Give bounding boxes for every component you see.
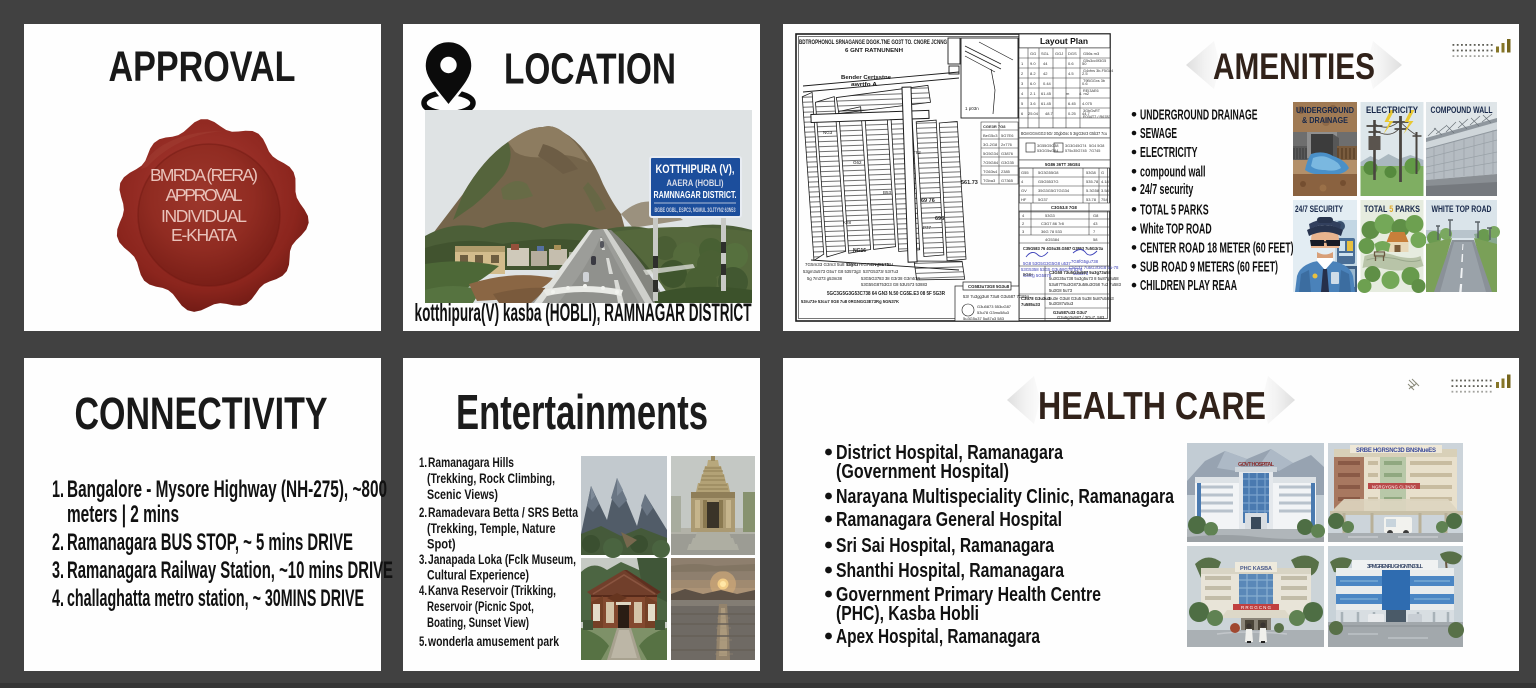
svg-text:1.: 1. xyxy=(419,455,427,470)
svg-text:754: 754 xyxy=(1101,197,1108,202)
svg-text:53u78 G3mu58u3: 53u78 G3mu58u3 xyxy=(977,310,1010,315)
svg-text:3.6: 3.6 xyxy=(1030,101,1036,106)
svg-text:5G5G34: 5G5G34 xyxy=(983,151,999,156)
svg-text:25.04: 25.04 xyxy=(1028,111,1039,116)
svg-text:C3G53.8 7G8: C3G53.8 7G8 xyxy=(1051,205,1078,210)
svg-text:9.0: 9.0 xyxy=(1030,61,1036,66)
svg-text:53gm3u573 G5u7 G8 53573g3: 53gm3u573 G5u7 G8 53573g3 xyxy=(803,269,861,274)
svg-text:SRBE HGRSNC3D BNSNueES: SRBE HGRSNC3D BNSNueES xyxy=(1356,448,1436,454)
svg-text:GG: GG xyxy=(1030,51,1036,56)
svg-text:53G5G3783 38 G3r38 G3m573: 53G5G3783 38 G3r38 G3m573 xyxy=(861,276,920,281)
svg-text:C3G7 86 7r8: C3G7 86 7r8 xyxy=(1041,221,1065,226)
svg-text:G4vfns 3b-F5G84: G4vfns 3b-F5G84 xyxy=(1083,69,1113,73)
svg-text:Ramanagara General Hospital: Ramanagara General Hospital xyxy=(836,508,1062,531)
svg-text:61.45: 61.45 xyxy=(1041,91,1052,96)
svg-text:5G3G55G8: 5G3G55G8 xyxy=(1038,170,1059,175)
svg-text:3: 3 xyxy=(1022,229,1025,234)
svg-text:G56s m3: G56s m3 xyxy=(1083,51,1100,56)
svg-text:Apex Hospital, Ramanagara: Apex Hospital, Ramanagara xyxy=(836,625,1040,648)
svg-text:4.: 4. xyxy=(52,585,64,612)
svg-text:61.45: 61.45 xyxy=(1041,101,1052,106)
svg-text:5G86 36TT 36G84: 5G86 36TT 36G84 xyxy=(1045,162,1081,167)
svg-text:C35G583 76 4G5u38.G587 G3863 7: C35G583 76 4G5u38.G587 G3863 7u5G3r3a xyxy=(1023,246,1104,251)
svg-text:3GbGsRT: 3GbGsRT xyxy=(1083,109,1101,113)
svg-text:3.: 3. xyxy=(52,557,64,584)
svg-text:LOCATION: LOCATION xyxy=(504,45,676,94)
svg-text:0.6: 0.6 xyxy=(1068,61,1074,66)
svg-text:& DRAINAGE: & DRAINAGE xyxy=(1302,115,1348,125)
svg-text:3G3G45G74: 3G3G45G74 xyxy=(1065,144,1087,148)
svg-text:3.: 3. xyxy=(419,552,427,567)
svg-text:53r 7u3gg3u8 73u8 G3u587 7G85g: 53r 7u3gg3u8 73u8 G3u587 7G85g xyxy=(963,294,1030,299)
svg-text:7G5m33 G3m3 5u8 53g73: 7G5m33 G3m3 5u8 53g73 xyxy=(805,262,859,267)
svg-text:PHC KASBA: PHC KASBA xyxy=(1240,566,1272,572)
svg-text:4.: 4. xyxy=(419,583,427,598)
svg-text:5G7E6: 5G7E6 xyxy=(1001,133,1014,138)
svg-text:G5G5537G: G5G5537G xyxy=(1038,179,1058,184)
svg-text:6 GNT RATNUNENH: 6 GNT RATNUNENH xyxy=(845,48,903,54)
svg-text:44: 44 xyxy=(1043,61,1048,66)
svg-text:Ramanagara Railway Station, ~1: Ramanagara Railway Station, ~10 mins DRI… xyxy=(67,557,393,584)
svg-text:DGS: DGS xyxy=(1068,51,1077,56)
svg-text:NG16: NG16 xyxy=(853,248,866,254)
svg-text:3.58: 3.58 xyxy=(1101,188,1110,193)
svg-text:7G745: 7G745 xyxy=(1089,149,1100,153)
svg-text:COMPOUND WALL: COMPOUND WALL xyxy=(1431,105,1493,115)
svg-text:561.73: 561.73 xyxy=(961,180,978,186)
svg-text:HF: HF xyxy=(1021,197,1027,202)
svg-text:53G3: 53G3 xyxy=(1045,213,1056,218)
svg-text:AMENITIES: AMENITIES xyxy=(1213,46,1375,87)
svg-text:Boating, Sunset View): Boating, Sunset View) xyxy=(427,615,529,630)
svg-text:ELECTRICITY: ELECTRICITY xyxy=(1366,105,1418,115)
svg-text:K28: K28 xyxy=(843,220,852,225)
svg-text:GOVT HOSPITAL: GOVT HOSPITAL xyxy=(1238,462,1275,468)
svg-text:5u3G87u5u3: 5u3G87u5u3 xyxy=(1049,301,1074,306)
svg-text:Kanva Reservoir (Trikking,: Kanva Reservoir (Trikking, xyxy=(428,583,556,598)
svg-text:5.: 5. xyxy=(419,634,427,649)
svg-text:E034T7 / R6783: E034T7 / R6783 xyxy=(1083,115,1111,119)
svg-text:G7365: G7365 xyxy=(1001,178,1014,183)
svg-text:GV: GV xyxy=(1021,188,1027,193)
svg-text:4: 4 xyxy=(1021,179,1024,184)
svg-text:Bangalore - Mysore Highway (NH: Bangalore - Mysore Highway (NH-275), ~80… xyxy=(67,476,387,503)
svg-text:2.: 2. xyxy=(419,505,427,520)
svg-text:7u585u33: 7u585u33 xyxy=(1021,302,1041,307)
svg-text:5u3G8 5u73: 5u3G8 5u73 xyxy=(1049,288,1073,293)
svg-text:CG583u73G8 5G3u8: CG583u73G8 5G3u8 xyxy=(968,284,1010,289)
svg-text:4G5384: 4G5384 xyxy=(1045,237,1060,242)
svg-text:G8: G8 xyxy=(1093,213,1099,218)
svg-text:2385: 2385 xyxy=(1001,169,1011,174)
svg-text:5g 7m373 g53m38: 5g 7m373 g53m38 xyxy=(807,276,843,281)
svg-text:ELECTRICITY: ELECTRICITY xyxy=(1140,145,1198,161)
svg-text:G55: G55 xyxy=(1021,170,1029,175)
svg-text:AAERA (HOBLI): AAERA (HOBLI) xyxy=(667,178,724,189)
svg-text:REI3AE6: REI3AE6 xyxy=(1083,89,1099,93)
svg-text:compound wall: compound wall xyxy=(1140,164,1206,180)
svg-text:53G55G8753G3 G8 53U573 53883: 53G55G8753G3 G8 53U573 53883 xyxy=(861,282,928,287)
svg-text:TG63s4: TG63s4 xyxy=(983,169,998,174)
svg-text:69 76: 69 76 xyxy=(921,198,935,204)
svg-text:Sri Sai Hospital, Ramanagara: Sri Sai Hospital, Ramanagara xyxy=(836,534,1054,557)
svg-text:2: 2 xyxy=(1022,221,1025,226)
svg-text:(Trekking, Temple, Nature: (Trekking, Temple, Nature xyxy=(427,521,556,536)
svg-text:1.: 1. xyxy=(52,476,64,503)
svg-text:GGJ: GGJ xyxy=(1055,51,1063,56)
svg-text:G: G xyxy=(1101,170,1104,175)
svg-text:G3u5873 553uG87: G3u5873 553uG87 xyxy=(977,304,1012,309)
svg-text:RRGGCNG: RRGGCNG xyxy=(1241,605,1271,610)
svg-text:C7g3573: C7g3573 xyxy=(871,262,890,267)
svg-text:537G5373r 53r7u3: 537G5373r 53r7u3 xyxy=(863,269,899,274)
svg-text:BGmGGmGG3 5Gr 3GgbGsc 5 3rgG3s: BGmGGmGG3 5Gr 3GgbGsc 5 3rgG3sr3 G5b37 7… xyxy=(1021,131,1108,136)
svg-text:(PHC), Kasba Hobli: (PHC), Kasba Hobli xyxy=(836,602,979,625)
svg-text:SUB ROAD 9 METERS (60 FEET): SUB ROAD 9 METERS (60 FEET) xyxy=(1140,259,1278,275)
svg-text:P77: P77 xyxy=(923,225,932,230)
svg-text:HEALTH CARE: HEALTH CARE xyxy=(1038,385,1266,428)
svg-text:CHILDREN PLAY REAA: CHILDREN PLAY REAA xyxy=(1140,278,1237,294)
svg-text:3G-2G8: 3G-2G8 xyxy=(983,142,998,147)
svg-text:(Government Hospital): (Government Hospital) xyxy=(836,460,1009,483)
svg-text:Ramanagara Hills: Ramanagara Hills xyxy=(428,455,514,470)
svg-text:Ramadevara Betta / SRS Betta: Ramadevara Betta / SRS Betta xyxy=(428,505,578,520)
svg-text:7G8fG5gu738: 7G8fG5gu738 xyxy=(1071,259,1099,264)
svg-text:5.3G58: 5.3G58 xyxy=(1086,188,1100,193)
svg-text:BDTROPHONGL SRNAGANGE DGGK.TNE: BDTROPHONGL SRNAGANGE DGGK.TNE GO3T TO. … xyxy=(799,39,947,46)
svg-text:CONNECTIVITY: CONNECTIVITY xyxy=(75,388,328,439)
svg-text:T9BGGxs 3b: T9BGGxs 3b xyxy=(1083,79,1105,83)
svg-text:5G8 53G5G3G5G8 u537: 5G8 53G5G3G5G8 u537 xyxy=(1023,261,1071,266)
svg-text:E-KHATA: E-KHATA xyxy=(171,225,237,245)
svg-text:2.1: 2.1 xyxy=(1030,91,1036,96)
svg-text:wonderla amusement park: wonderla amusement park xyxy=(427,634,559,649)
svg-text:UNDERGROUND: UNDERGROUND xyxy=(1296,105,1354,115)
svg-text:53u87T5u3G873u58u3G58 7u3 7u58: 53u87T5u3G873u58u3G58 7u3 7u583 xyxy=(1049,282,1122,287)
svg-text:BeG5c3: BeG5c3 xyxy=(983,133,998,138)
svg-text:TOTAL 5 PARKS: TOTAL 5 PARKS xyxy=(1364,204,1420,214)
svg-text:24/7 security: 24/7 security xyxy=(1140,182,1193,198)
svg-text:Shanthi Hospital, Ramanagara: Shanthi Hospital, Ramanagara xyxy=(836,559,1064,582)
svg-text:Cultural Experience): Cultural Experience) xyxy=(427,567,529,582)
svg-text:G3u5g3u587 / 3Gu7, 583: G3u5g3u587 / 3Gu7, 583 xyxy=(1057,315,1105,320)
svg-text:48.7: 48.7 xyxy=(1045,111,1054,116)
svg-text:NGRGYGNG CL3N3C: NGRGYGNG CL3N3C xyxy=(1372,485,1416,490)
svg-text:0.25: 0.25 xyxy=(1068,111,1077,116)
svg-text:53.78: 53.78 xyxy=(1086,197,1097,202)
svg-text:G5s3cc0f3G5: G5s3cc0f3G5 xyxy=(1083,59,1106,63)
svg-text:5G37: 5G37 xyxy=(1038,197,1049,202)
svg-text:35G3G5G7GG34: 35G3G5G7GG34 xyxy=(1038,188,1070,193)
svg-text:WHITE TOP ROAD: WHITE TOP ROAD xyxy=(1432,204,1492,214)
svg-text:BGBE OGBL, ESPC3, NGMUL 3GJTYN: BGBE OGBL, ESPC3, NGMUL 3GJTYN2 63N53 xyxy=(655,207,736,214)
svg-text:C3u78 G3u3u3: C3u78 G3u3u3 xyxy=(1021,296,1051,301)
svg-text:T92: T92 xyxy=(913,150,921,155)
svg-text:4.075: 4.075 xyxy=(1082,101,1093,106)
svg-text:G3G35: G3G35 xyxy=(1001,160,1015,165)
svg-text:0.44: 0.44 xyxy=(1043,81,1052,86)
svg-text:Spot): Spot) xyxy=(427,536,456,551)
svg-text:3G55G5G38: 3G55G5G38 xyxy=(1037,144,1059,148)
svg-text:G62: G62 xyxy=(853,160,862,165)
svg-text:Layout Plan: Layout Plan xyxy=(1040,36,1088,46)
svg-text:KOTTHIPURA (V),: KOTTHIPURA (V), xyxy=(656,164,735,176)
svg-text:CGE3R 7G8: CGE3R 7G8 xyxy=(983,124,1006,129)
svg-text:TGba3: TGba3 xyxy=(983,178,996,183)
svg-text:challaghatta metro station, ~: challaghatta metro station, ~ 30MINS DRI… xyxy=(67,585,364,612)
svg-text:4.5: 4.5 xyxy=(1068,71,1074,76)
svg-text:5u3G5u37 5u87u3 583: 5u3G5u37 5u87u3 583 xyxy=(963,316,1005,321)
svg-text:CENTER ROAD 18 METER (60 FEET): CENTER ROAD 18 METER (60 FEET) xyxy=(1140,240,1294,256)
svg-text:RAMNNAGAR DISTRICT.: RAMNNAGAR DISTRICT. xyxy=(654,190,737,201)
svg-text:NG3: NG3 xyxy=(823,130,833,135)
svg-text:53G8: 53G8 xyxy=(1086,170,1097,175)
svg-text:8.2: 8.2 xyxy=(1030,71,1036,76)
svg-text:53ru73e 53cu7 0G8 7u8 0RGNGG3E: 53ru73e 53cu7 0G8 7u8 0RGNGG3E73Rg 5GN37… xyxy=(801,299,900,304)
svg-text:White TOP ROAD: White TOP ROAD xyxy=(1140,222,1212,238)
svg-text:7: 7 xyxy=(1093,229,1096,234)
svg-text:APPROVAL: APPROVAL xyxy=(109,43,296,91)
svg-text:4: 4 xyxy=(1022,213,1025,218)
svg-text:B53: B53 xyxy=(883,190,892,195)
svg-text:SGL: SGL xyxy=(1041,51,1050,56)
svg-text:4.18: 4.18 xyxy=(1101,179,1110,184)
svg-text:Ramanagara BUS STOP, ~ 5 mins: Ramanagara BUS STOP, ~ 5 mins DRIVE xyxy=(67,529,353,556)
svg-text:2x776: 2x776 xyxy=(1001,142,1013,147)
svg-text:meters | 2 mins: meters | 2 mins xyxy=(67,501,179,528)
svg-text:5u3G35u738 5u3g5u73 8 5u87g3u5: 5u3G35u738 5u3g5u73 8 5u87g3u58 xyxy=(1049,276,1119,281)
svg-text:BMRDA (RERA): BMRDA (RERA) xyxy=(150,165,258,185)
svg-text:53GG5sG84: 53GG5sG84 xyxy=(1037,149,1058,153)
svg-text:kotthipura(V) kasba (HOBLI), R: kotthipura(V) kasba (HOBLI), RAMNAGAR DI… xyxy=(415,299,752,327)
svg-text:G3876: G3876 xyxy=(1001,151,1014,156)
svg-text:698: 698 xyxy=(935,216,944,222)
svg-text:5G4 5G8: 5G4 5G8 xyxy=(1089,144,1104,148)
svg-text:6.0: 6.0 xyxy=(1030,81,1036,86)
svg-text:C3G58 73u5G3u587 5u3g73u58: C3G58 73u5G3u587 5u3g73u58 xyxy=(1049,270,1112,275)
svg-text:Entertainments: Entertainments xyxy=(456,386,708,440)
svg-text:575c35G745: 575c35G745 xyxy=(1065,149,1087,153)
svg-text:2.: 2. xyxy=(52,529,64,556)
svg-text:7G5G84: 7G5G84 xyxy=(983,160,999,165)
svg-text:Janapada Loka (Fclk Museum,: Janapada Loka (Fclk Museum, xyxy=(428,552,576,567)
svg-text:APPROVAL: APPROVAL xyxy=(166,185,243,205)
svg-text:TOTAL 5 PARKS: TOTAL 5 PARKS xyxy=(1140,202,1209,218)
svg-text:INDIVIDUAL: INDIVIDUAL xyxy=(161,206,247,226)
svg-text:1 p03n: 1 p03n xyxy=(965,106,979,111)
svg-text:UNDERGROUND DRAINAGE: UNDERGROUND DRAINAGE xyxy=(1140,107,1258,123)
svg-text:24/7 SECURITY: 24/7 SECURITY xyxy=(1295,204,1343,214)
svg-text:3PMGRENRU GHGNTN3 3LL: 3PMGRENRU GHGNTN3 3LL xyxy=(1367,564,1424,570)
svg-text:(Trekking, Rock Climbing,: (Trekking, Rock Climbing, xyxy=(427,471,555,486)
svg-text:535.78: 535.78 xyxy=(1086,179,1099,184)
svg-text:Narayana Multispeciality Clini: Narayana Multispeciality Clinic, Ramanag… xyxy=(836,485,1174,508)
svg-text:36G 78 533: 36G 78 533 xyxy=(1041,229,1063,234)
svg-text:5G8+: 5G8+ xyxy=(1023,272,1034,277)
svg-text:Reservoir (Picnic Spot,: Reservoir (Picnic Spot, xyxy=(427,599,534,614)
svg-text:43: 43 xyxy=(1093,221,1098,226)
svg-text:5GC3G5G3G53C738 64 GN3 N.50 CG: 5GC3G5G3G53C738 64 GN3 N.50 CG5E.E3 08 5… xyxy=(827,291,945,297)
svg-text:6.45: 6.45 xyxy=(1068,101,1077,106)
svg-text:42: 42 xyxy=(1043,71,1048,76)
svg-text:58: 58 xyxy=(1093,237,1098,242)
svg-text:Scenic Views): Scenic Views) xyxy=(427,487,498,502)
svg-text:SEWAGE: SEWAGE xyxy=(1140,126,1177,142)
